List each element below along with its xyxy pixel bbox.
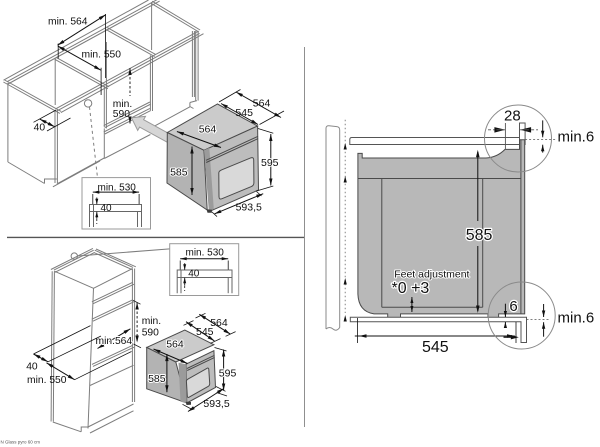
svg-text:28: 28 <box>504 108 521 125</box>
svg-text:40: 40 <box>188 269 200 280</box>
svg-text:545: 545 <box>235 107 253 119</box>
svg-text:593,5: 593,5 <box>236 202 262 214</box>
svg-text:40: 40 <box>101 203 113 214</box>
svg-text:595: 595 <box>261 157 279 169</box>
svg-text:min. 550: min. 550 <box>27 375 67 386</box>
svg-text:*0 +3: *0 +3 <box>392 280 430 297</box>
svg-text:40: 40 <box>34 123 46 134</box>
svg-text:Feet adjustment: Feet adjustment <box>394 268 469 280</box>
svg-text:585: 585 <box>170 167 188 179</box>
svg-text:6: 6 <box>509 298 517 315</box>
svg-text:564: 564 <box>199 124 217 136</box>
svg-text:590: 590 <box>142 327 159 338</box>
svg-text:545: 545 <box>422 339 449 356</box>
svg-text:min.: min. <box>142 316 161 327</box>
svg-text:595: 595 <box>219 367 237 379</box>
svg-text:564: 564 <box>253 97 271 109</box>
svg-text:545: 545 <box>196 326 214 338</box>
svg-text:min.564: min.564 <box>96 336 133 347</box>
svg-text:N Glass pyro 60 cm: N Glass pyro 60 cm <box>1 440 41 445</box>
svg-text:593,5: 593,5 <box>203 398 229 410</box>
svg-text:min. 550: min. 550 <box>82 49 122 60</box>
svg-text:min.: min. <box>113 99 132 110</box>
svg-text:585: 585 <box>148 373 166 385</box>
svg-text:564: 564 <box>166 339 184 351</box>
svg-text:min. 564: min. 564 <box>48 16 88 27</box>
svg-text:585: 585 <box>466 227 493 244</box>
svg-text:40: 40 <box>26 361 38 372</box>
svg-text:min. 530: min. 530 <box>186 248 225 259</box>
svg-text:min.6: min.6 <box>558 310 595 327</box>
svg-text:min.6: min.6 <box>558 129 595 146</box>
svg-text:590: 590 <box>113 109 130 120</box>
